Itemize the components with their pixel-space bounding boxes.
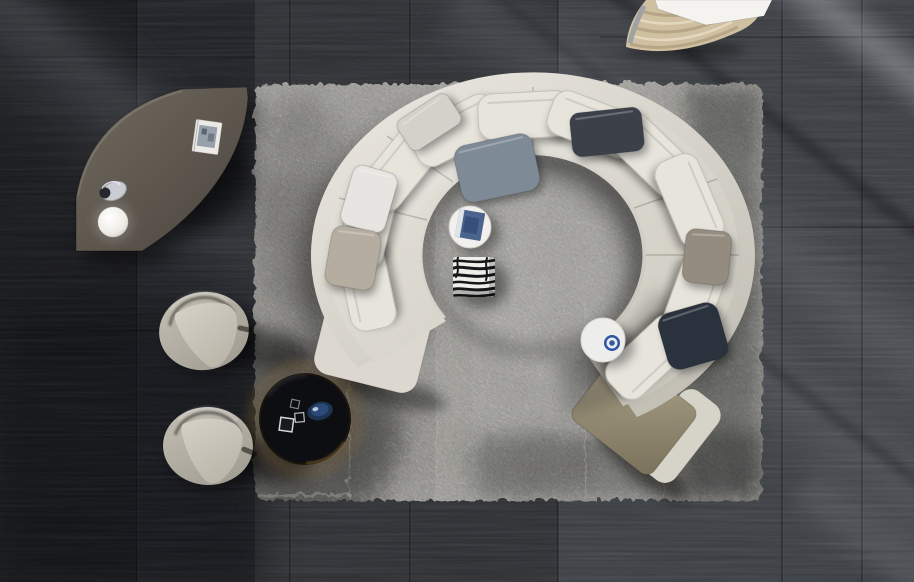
- room-photo: Top-down view of a living room: a curved…: [0, 0, 914, 582]
- throw-pillow-dark-slate: [569, 106, 645, 157]
- book: Book: [192, 119, 222, 154]
- sphere-lamp: Sphere table lamp: [98, 207, 128, 237]
- throw-pillow-taupe: [681, 228, 732, 287]
- blue-book: [455, 209, 485, 241]
- blue-plate: [604, 335, 620, 351]
- throw-pillow-greige: [323, 224, 383, 292]
- pouf-edge-shade: [453, 291, 495, 297]
- coffee-table: Round dark coffee table Dark blue bowl S…: [253, 367, 357, 471]
